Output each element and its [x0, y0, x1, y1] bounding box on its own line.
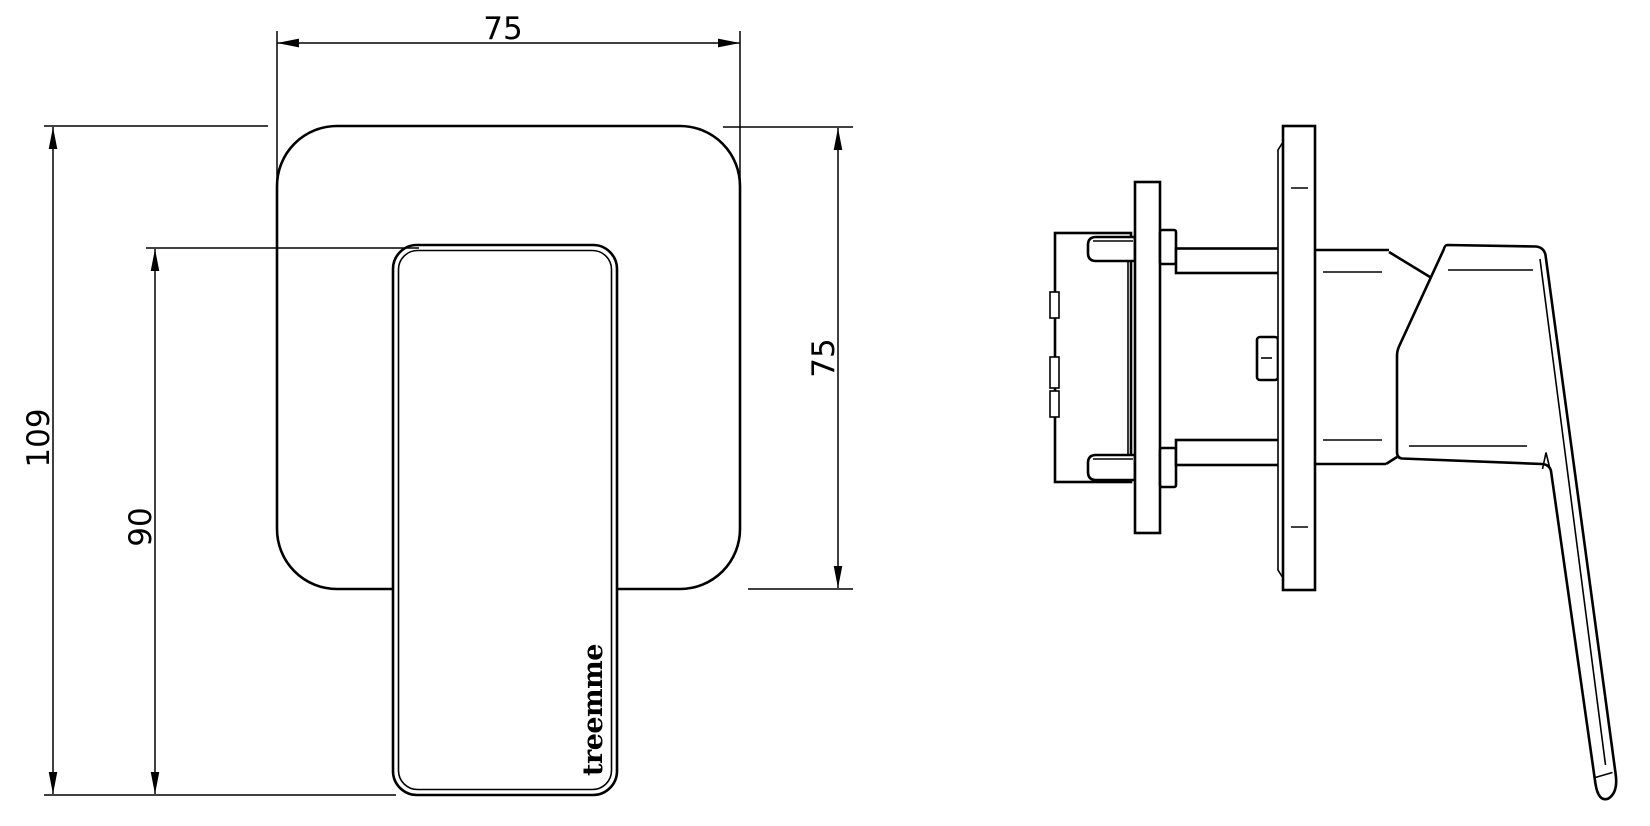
arrow-top [49, 127, 58, 149]
dim-top-width: 75 [277, 11, 740, 196]
dim-top-width-label: 75 [483, 11, 522, 47]
handle-side-outline [1397, 245, 1616, 799]
dim-handle-height: 90 [123, 248, 419, 794]
arrow-bottom [834, 566, 843, 588]
arrow-bottom [49, 772, 58, 794]
mixer-technical-drawing: treemme 75 109 90 [0, 0, 1650, 826]
front-view: treemme 75 109 90 [21, 11, 853, 795]
neck-bottom-step [1386, 457, 1397, 464]
mounting-bracket [1135, 182, 1160, 533]
neck-handle-seam [1389, 252, 1430, 277]
brand-label: treemme [578, 644, 609, 776]
bolt-nut-bottom [1160, 448, 1176, 487]
dim-overall-height-label: 109 [21, 408, 57, 467]
dim-plate-height: 75 [723, 127, 853, 589]
side-view [1050, 126, 1616, 799]
threaded-rod-top [1176, 249, 1283, 274]
bolt-nut-top [1160, 230, 1176, 264]
wall-box [1055, 233, 1131, 482]
technical-drawing-page: treemme 75 109 90 [0, 0, 1650, 826]
arrow-right [718, 39, 740, 48]
arrow-top [834, 128, 843, 150]
threaded-rod-bottom [1176, 440, 1283, 465]
arrow-bottom [151, 772, 160, 794]
arrow-top [151, 249, 160, 271]
dim-plate-height-label: 75 [806, 338, 842, 377]
wall-box-tab-top [1050, 292, 1059, 318]
wall-box-tab-middle [1050, 357, 1059, 388]
dim-overall-height: 109 [21, 126, 396, 795]
cover-plate-side [1283, 126, 1315, 590]
dim-handle-height-label: 90 [123, 507, 159, 546]
arrow-left [277, 39, 299, 48]
wall-box-tab-bottom [1050, 391, 1059, 417]
handle-side-edge-inner-line [1540, 259, 1606, 765]
